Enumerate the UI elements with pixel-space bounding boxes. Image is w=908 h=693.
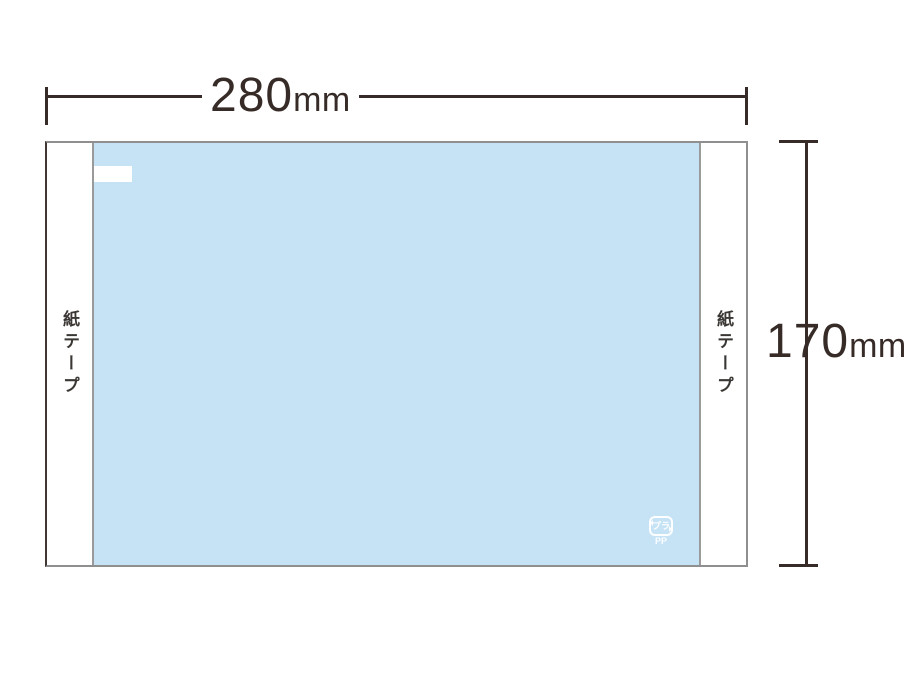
left-paper-tape-label: 紙テープ: [57, 310, 82, 398]
height-dimension-label: 170mm: [766, 316, 907, 368]
height-dimension-bottom-tick: [779, 564, 818, 567]
film-area: プラ PP: [92, 143, 701, 565]
width-dimension-label: 280mm: [202, 70, 359, 122]
width-unit: mm: [293, 81, 351, 119]
width-value: 280: [210, 69, 293, 122]
right-paper-tape-strip: 紙テープ: [701, 143, 746, 565]
width-dimension-right-tick: [745, 87, 748, 125]
height-dimension-top-tick: [779, 140, 818, 143]
width-dimension-left-tick: [45, 87, 48, 125]
height-value: 170: [766, 315, 849, 368]
recycle-mark-text: プラ: [652, 522, 670, 531]
diagram-canvas: 280mm 170mm 紙テープ プラ PP 紙テープ: [0, 0, 908, 693]
height-unit: mm: [849, 327, 907, 365]
right-paper-tape-label: 紙テープ: [711, 310, 736, 398]
recycle-arrows-icon: プラ: [649, 516, 673, 536]
left-paper-tape-strip: 紙テープ: [47, 143, 92, 565]
opening-notch: [94, 166, 132, 182]
recycle-material-code: PP: [648, 537, 674, 546]
pla-recycle-mark: プラ PP: [648, 516, 674, 546]
width-dimension-line: [45, 95, 748, 98]
package-outline: 紙テープ プラ PP 紙テープ: [45, 141, 748, 567]
